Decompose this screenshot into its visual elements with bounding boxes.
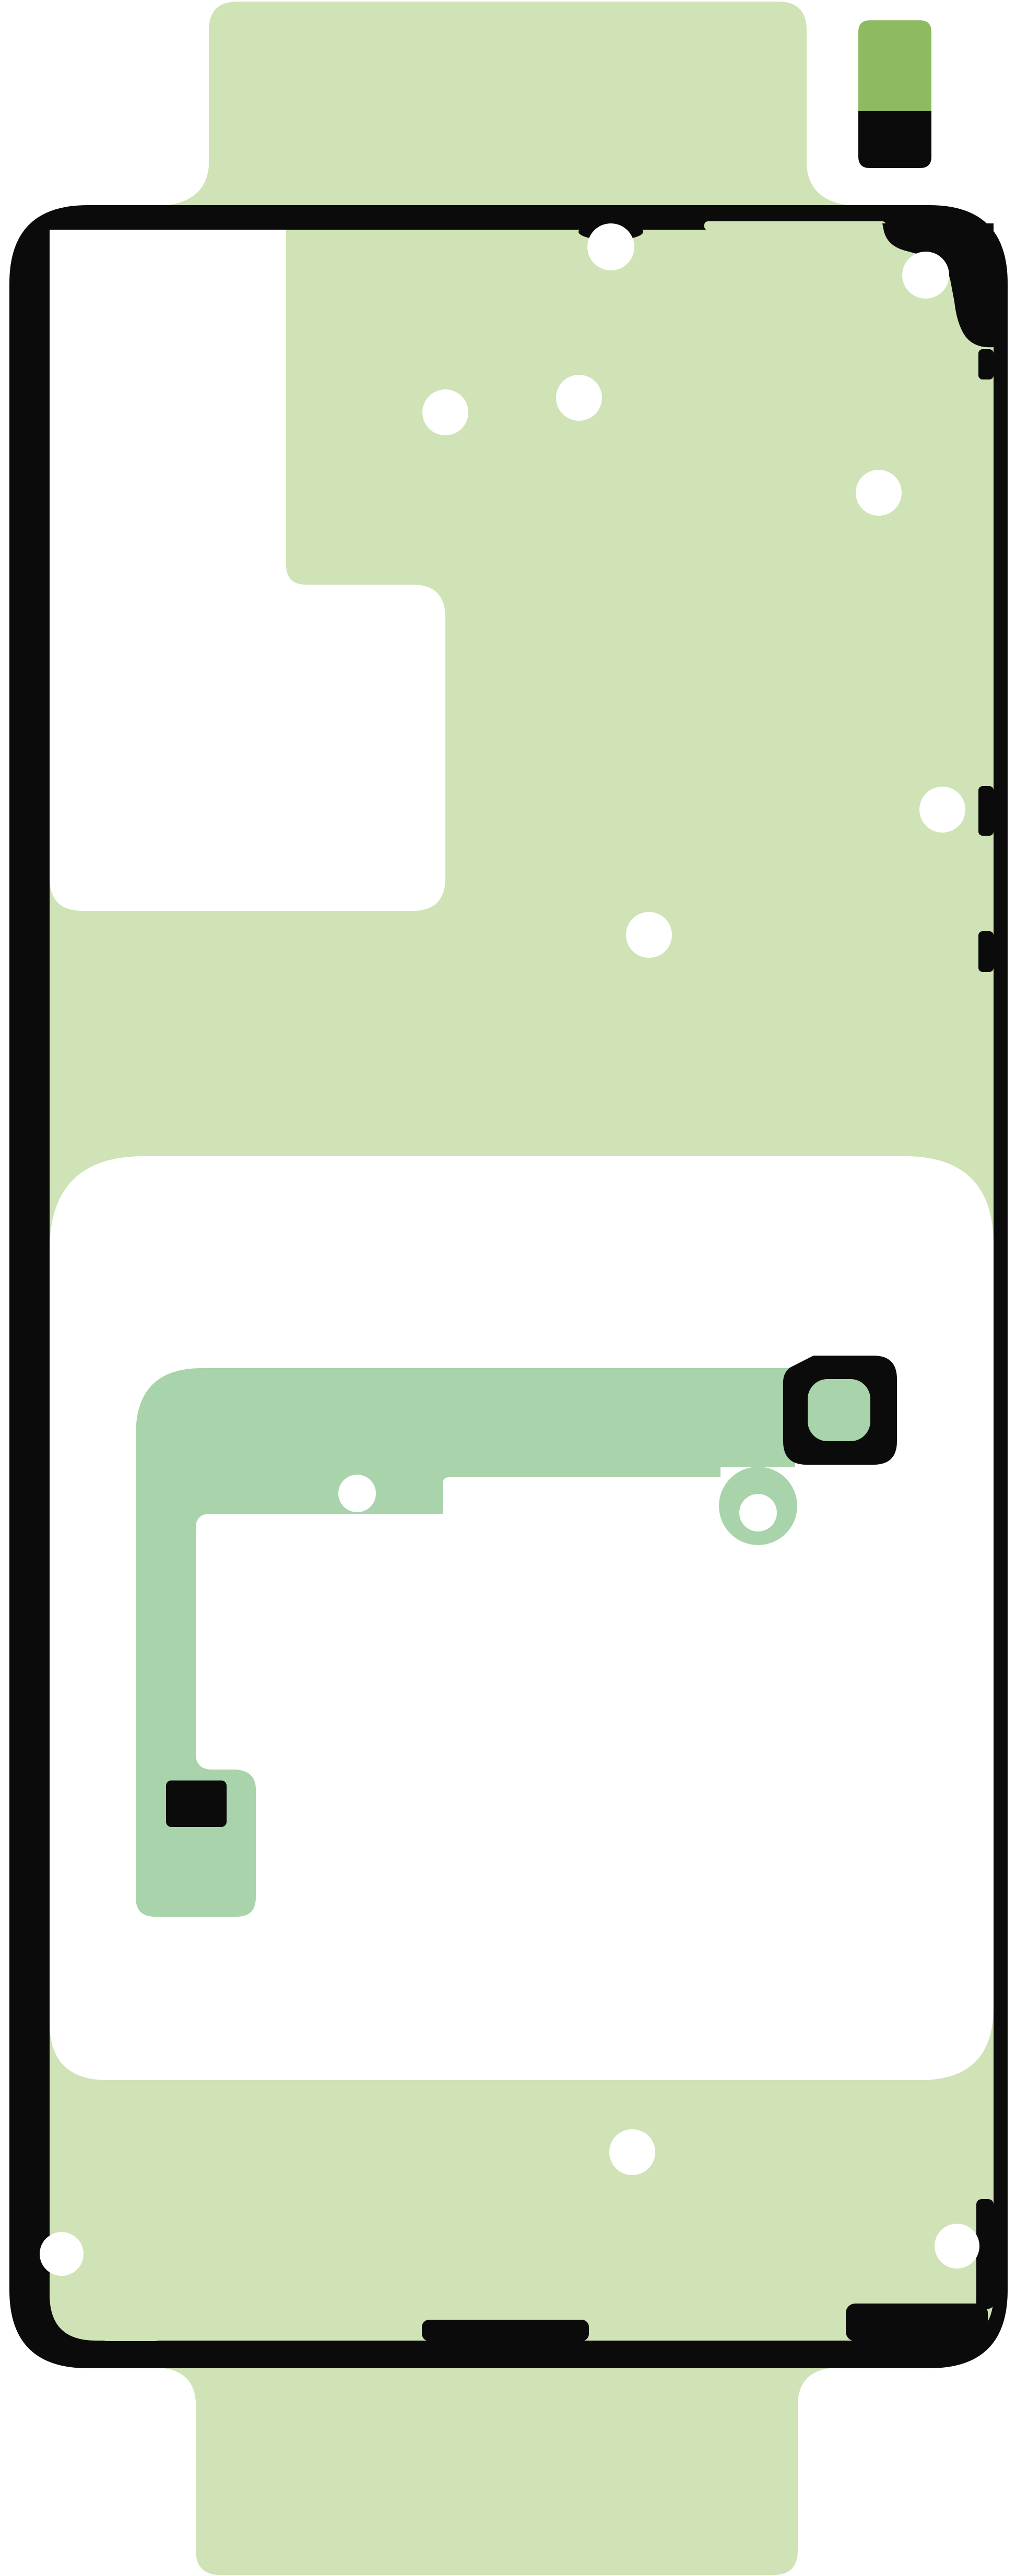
bottom-release-tab [164,2368,829,2575]
camera-bracket-inner [808,1379,870,1441]
screw-hole-2 [902,252,949,299]
screw-hole-1 [587,223,634,270]
strip-screw-hole-1 [338,1475,376,1512]
strip-screw-hole-2 [739,1494,777,1532]
screw-hole-6 [919,787,965,833]
screw-hole-10 [40,2232,84,2276]
flex-window-hole [166,1780,227,1827]
right-edge-notch-4 [978,931,994,972]
bottom-band-raised-segment [422,2320,589,2341]
screw-hole-3 [556,375,602,421]
right-edge-notch-3 [978,786,994,836]
top-release-tab [167,2,848,205]
screw-hole-7 [626,912,672,958]
right-edge-notch-2 [978,349,994,379]
screw-hole-9 [935,2224,979,2269]
screw-hole-8 [609,2129,655,2175]
screw-hole-4 [422,389,468,435]
pull-tab-green [858,20,931,111]
screw-hole-5 [856,470,902,516]
top-band-thin-segment [704,221,886,230]
bottom-right-step [846,2304,988,2341]
adhesive-sheet-illustration [0,0,1016,2576]
right-edge-notch-1 [978,302,994,333]
product-image [0,0,1016,2576]
right-edge-bottom-widening [976,2199,994,2309]
pull-tab-black [858,111,931,168]
bottom-band-notch [99,2318,163,2341]
